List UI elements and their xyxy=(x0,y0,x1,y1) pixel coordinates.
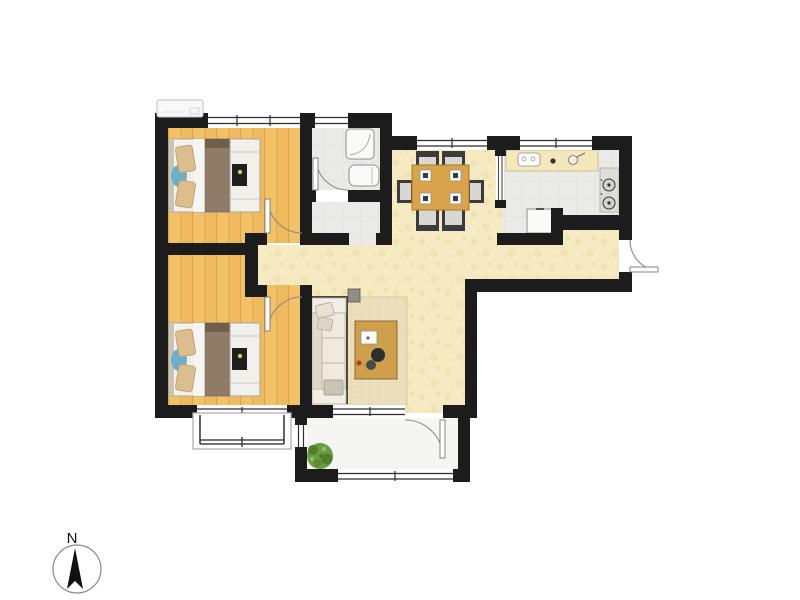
tv xyxy=(232,348,247,370)
north-arrow-icon xyxy=(67,548,83,589)
counter-item xyxy=(550,158,555,163)
tv-light xyxy=(238,170,242,174)
bed-blanket xyxy=(205,139,230,212)
kitchen-passage-floor xyxy=(497,207,503,233)
plate-mark xyxy=(423,173,428,178)
tv xyxy=(232,164,247,186)
door-leaf xyxy=(630,267,658,272)
bay-window xyxy=(193,413,291,449)
living-room-furniture xyxy=(310,289,407,405)
window-dining xyxy=(417,136,487,150)
window-balcony-bottom xyxy=(338,469,453,482)
dining-bench-seat xyxy=(470,183,481,200)
pan xyxy=(569,156,578,165)
bed-blanket-fold xyxy=(205,139,230,148)
bedroom-top-furniture xyxy=(169,139,260,212)
bathroom-lower-floor xyxy=(312,202,380,233)
burner-center xyxy=(607,201,610,204)
bed-blanket-fold xyxy=(205,323,230,332)
air-conditioner xyxy=(157,100,203,117)
door-leaf xyxy=(265,297,270,331)
floor-plan-svg: N xyxy=(0,0,800,600)
bed-pillow xyxy=(175,329,196,357)
plate-mark xyxy=(423,196,428,201)
plate-mark xyxy=(453,173,458,178)
window-balcony-left xyxy=(295,425,307,447)
kitchen-sliding-door xyxy=(496,156,504,200)
vestibule-floor xyxy=(258,245,312,285)
tv-light xyxy=(238,354,242,358)
window-bedroom-top xyxy=(208,113,300,128)
window-living-balcony xyxy=(333,405,405,418)
floor-plan-canvas: N xyxy=(0,0,800,600)
bed-blanket xyxy=(205,323,230,396)
coffee-table-decor xyxy=(366,360,376,370)
door-leaf xyxy=(440,420,445,458)
compass-north-label: N xyxy=(67,530,78,547)
sofa-ottoman xyxy=(324,380,343,395)
window-kitchen xyxy=(520,136,592,150)
sofa-cushion xyxy=(322,338,345,363)
bed-pillow xyxy=(175,364,196,392)
side-table xyxy=(348,289,360,302)
dining-bench-seat xyxy=(400,183,411,200)
coffee-table-decor xyxy=(366,336,369,339)
bedroom-bottom-furniture xyxy=(169,323,260,396)
burner-center xyxy=(607,183,610,186)
bed-pillow xyxy=(175,180,196,208)
plant xyxy=(307,443,333,469)
bathroom-doorway-floor xyxy=(349,233,376,245)
sofa xyxy=(310,296,348,404)
coffee-table-decor xyxy=(371,348,385,362)
sink xyxy=(518,153,540,166)
bed-pillow xyxy=(175,145,196,173)
door-leaf xyxy=(313,158,318,190)
stove-knob xyxy=(601,193,603,195)
north-compass: N xyxy=(53,530,101,593)
sofa-pillow xyxy=(317,317,333,332)
coffee-table xyxy=(355,321,397,379)
door-leaf xyxy=(265,199,270,233)
plate-mark xyxy=(453,196,458,201)
fridge xyxy=(527,209,553,233)
washbasin xyxy=(349,165,379,186)
stove-knob xyxy=(601,179,603,181)
window-bathroom xyxy=(315,113,348,128)
entry-door xyxy=(630,240,658,272)
coffee-table-decor xyxy=(357,361,362,366)
